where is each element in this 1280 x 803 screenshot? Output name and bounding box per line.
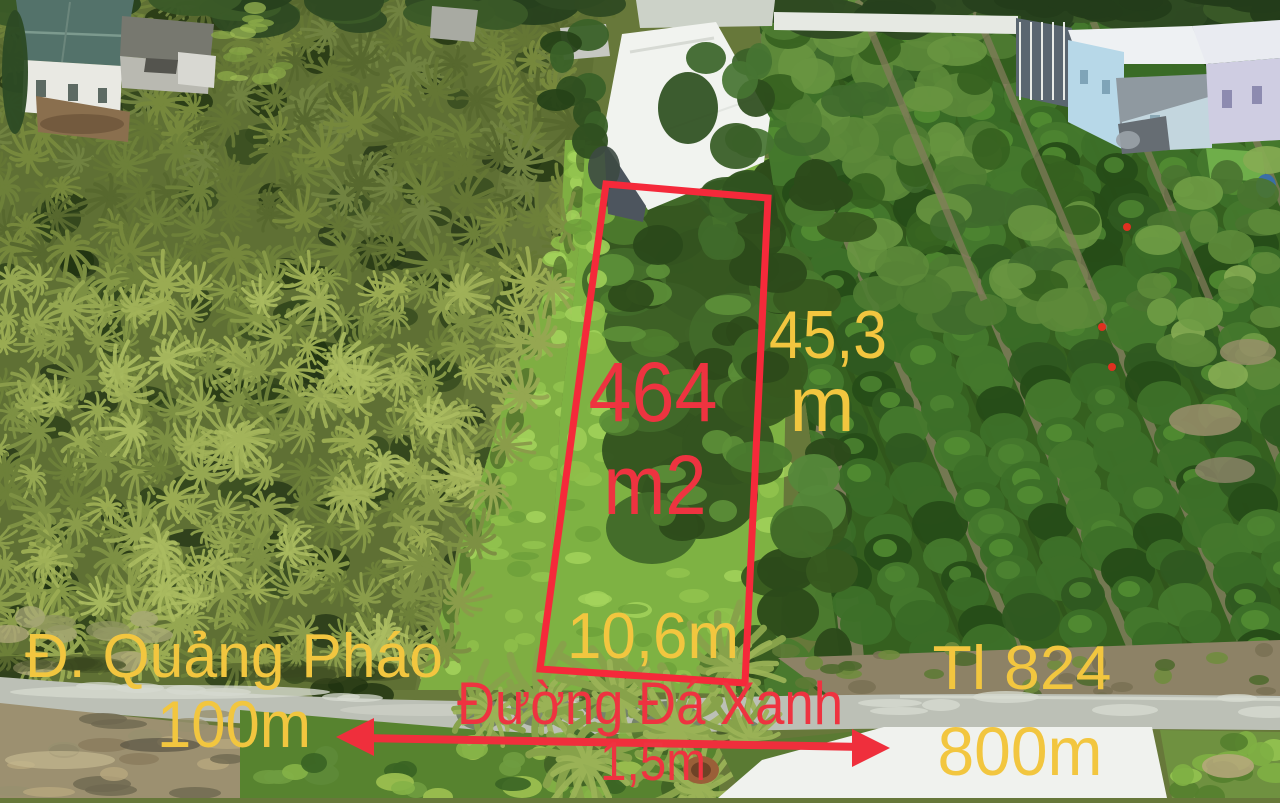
svg-text:Tl 824: Tl 824 (933, 634, 1112, 703)
svg-text:464: 464 (589, 345, 718, 439)
svg-text:800m: 800m (938, 713, 1103, 790)
svg-text:Đ. Quảng Pháo: Đ. Quảng Pháo (25, 622, 443, 691)
svg-text:Đường Đá Xanh: Đường Đá Xanh (457, 670, 843, 737)
svg-text:m: m (790, 360, 855, 448)
svg-text:1,5m: 1,5m (600, 730, 706, 792)
svg-text:m2: m2 (604, 438, 707, 532)
svg-text:100m: 100m (157, 687, 311, 761)
svg-text:10,6m: 10,6m (567, 599, 739, 672)
